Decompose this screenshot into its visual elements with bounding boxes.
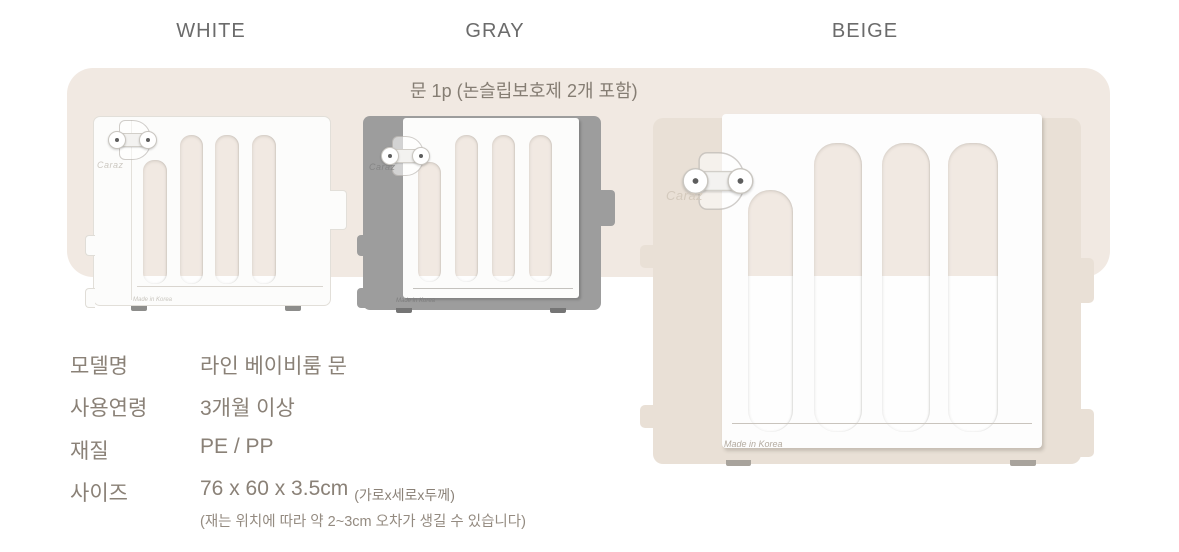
door-slot — [529, 135, 552, 282]
door-slot — [418, 162, 441, 282]
door-slot — [748, 190, 793, 432]
door-bottom-line — [413, 288, 573, 289]
connector-tab — [85, 288, 95, 308]
color-label-white: WHITE — [176, 20, 245, 43]
spec-label: 사용연령 — [70, 392, 200, 422]
connector-tab — [85, 235, 95, 256]
origin-text: Made in Korea — [133, 297, 172, 303]
spec-label: 재질 — [70, 435, 200, 465]
spec-label: 사이즈 — [70, 477, 200, 507]
spec-value: 76 x 60 x 3.5cm — [200, 477, 348, 507]
spec-table: 모델명 라인 베이비룸 문 사용연령 3개월 이상 재질 PE / PP 사이즈… — [70, 350, 690, 550]
gate-foot — [285, 306, 301, 311]
door-slot — [180, 135, 203, 284]
measurement-tolerance-caption: (재는 위치에 따라 약 2~3cm 오차가 생길 수 있습니다) — [200, 510, 526, 531]
gate-foot — [1010, 460, 1036, 466]
door-slot — [143, 160, 167, 284]
gate-foot — [396, 308, 412, 313]
product-gate-gray: Caraz Made in Korea — [358, 110, 610, 318]
spec-row-size: 사이즈 76 x 60 x 3.5cm (가로x세로x두께) — [70, 477, 455, 507]
door-slot — [455, 135, 478, 282]
door-slot — [492, 135, 515, 282]
spec-value-note: (가로x세로x두께) — [354, 485, 455, 507]
brand-logo: Caraz — [369, 162, 396, 172]
color-label-gray: GRAY — [465, 20, 524, 43]
spec-row-age: 사용연령 3개월 이상 — [70, 392, 295, 422]
connector-tab — [357, 288, 366, 308]
spec-label: 모델명 — [70, 350, 200, 380]
origin-text: Made in Korea — [396, 298, 435, 304]
brand-logo: Caraz — [666, 188, 703, 203]
door-bottom-line — [732, 423, 1032, 424]
connector-tab — [600, 190, 615, 226]
door-slot — [252, 135, 276, 284]
door-slot — [882, 143, 930, 432]
connector-tab — [357, 235, 366, 256]
gate-lock-icon — [681, 152, 756, 216]
brand-logo: Caraz — [97, 160, 124, 170]
connector-tab — [330, 190, 347, 230]
color-label-beige: BEIGE — [832, 20, 898, 43]
door-slot — [814, 143, 862, 432]
spec-value: 라인 베이비룸 문 — [200, 350, 347, 380]
spec-value: 3개월 이상 — [200, 392, 295, 422]
lock-knob — [139, 131, 157, 149]
product-gate-beige: Caraz Made in Korea — [648, 112, 1110, 474]
origin-text: Made in Korea — [724, 439, 783, 449]
connector-tab — [640, 245, 654, 268]
included-items-text: 문 1p (논슬립보호제 2개 포함) — [410, 77, 638, 103]
gate-lock-icon — [107, 120, 159, 164]
gate-foot — [131, 306, 147, 311]
spec-value: PE / PP — [200, 435, 274, 465]
connector-tab — [1078, 258, 1094, 303]
product-detail-image: WHITE GRAY BEIGE 문 1p (논슬립보호제 2개 포함) Car… — [0, 0, 1179, 552]
spec-row-model: 모델명 라인 베이비룸 문 — [70, 350, 347, 380]
lock-knob — [727, 168, 753, 194]
door-slot — [948, 143, 998, 432]
lock-knob — [108, 131, 126, 149]
door-bottom-line — [137, 286, 323, 287]
gate-foot — [550, 308, 566, 313]
door-slot — [215, 135, 239, 284]
gate-foot — [726, 460, 751, 466]
product-gate-white: Caraz Made in Korea — [85, 112, 350, 317]
spec-row-material: 재질 PE / PP — [70, 435, 274, 465]
gate-lock-icon — [380, 136, 432, 180]
connector-tab — [1078, 409, 1094, 457]
lock-knob — [412, 147, 430, 165]
